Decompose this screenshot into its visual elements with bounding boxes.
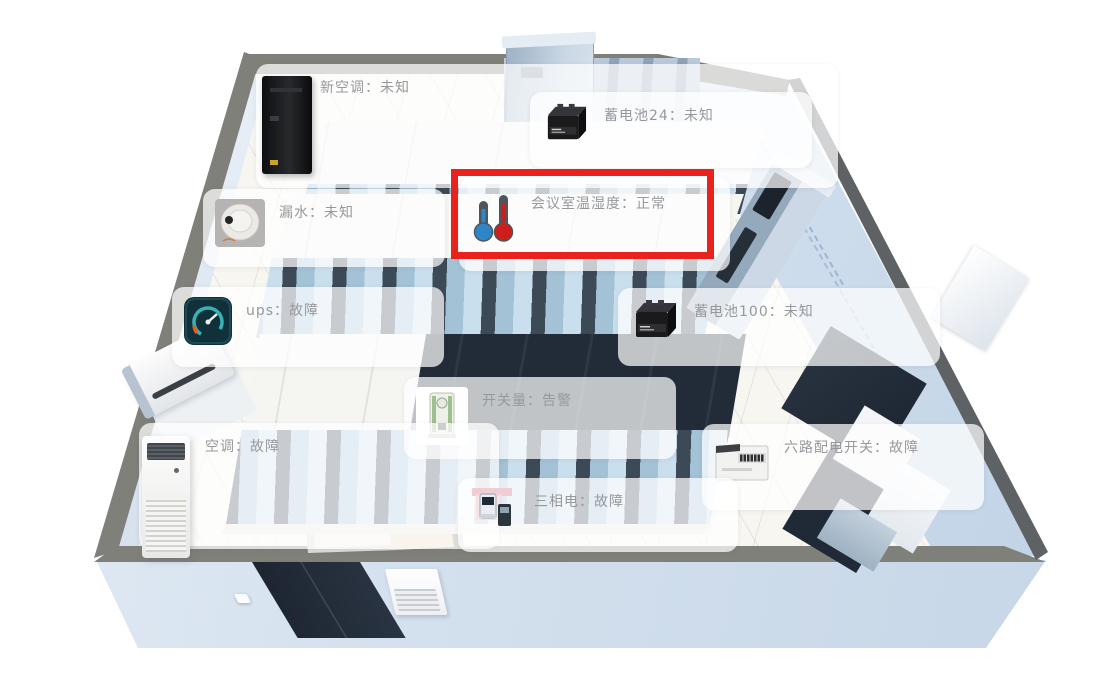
- marker-water-leak-label: 漏水：未知: [279, 202, 354, 222]
- tower-ac-unit[interactable]: [262, 76, 312, 174]
- marker-battery-24-label: 蓄电池24：未知: [604, 105, 714, 125]
- marker-water-leak[interactable]: 漏水：未知: [203, 189, 445, 267]
- battery-image: [630, 298, 680, 346]
- leak-detector-image: [215, 199, 265, 251]
- marker-digital-io-label: 开关量：告警: [482, 390, 572, 410]
- marker-battery-100[interactable]: 蓄电池100：未知: [618, 288, 940, 366]
- marker-air-conditioner-label: 空调：故障: [205, 436, 280, 456]
- machine-room-3d-view: 新空调：未知 蓄电池24：未知: [0, 0, 1101, 674]
- marker-three-phase[interactable]: 三相电：故障: [458, 478, 738, 552]
- marker-three-phase-label: 三相电：故障: [534, 491, 624, 511]
- marker-six-way-switch-label: 六路配电开关：故障: [784, 437, 919, 457]
- marker-ups[interactable]: ups：故障: [172, 287, 444, 367]
- marker-battery-100-label: 蓄电池100：未知: [694, 301, 814, 321]
- marker-new-ac-label: 新空调：未知: [320, 77, 410, 97]
- marker-six-way-switch[interactable]: 六路配电开关：故障: [702, 424, 984, 510]
- floor-ac-unit[interactable]: [142, 436, 190, 558]
- outdoor-ac-box: [385, 569, 448, 615]
- marker-air-conditioner[interactable]: 空调：故障: [139, 423, 499, 549]
- battery-image: [542, 102, 590, 148]
- gauge-icon: [184, 297, 232, 349]
- power-meter-image: [470, 484, 520, 536]
- white-storage-box: [931, 246, 1029, 351]
- marker-ups-label: ups：故障: [246, 300, 319, 320]
- highlight-frame: [451, 169, 714, 259]
- marker-battery-24[interactable]: 蓄电池24：未知: [530, 92, 812, 168]
